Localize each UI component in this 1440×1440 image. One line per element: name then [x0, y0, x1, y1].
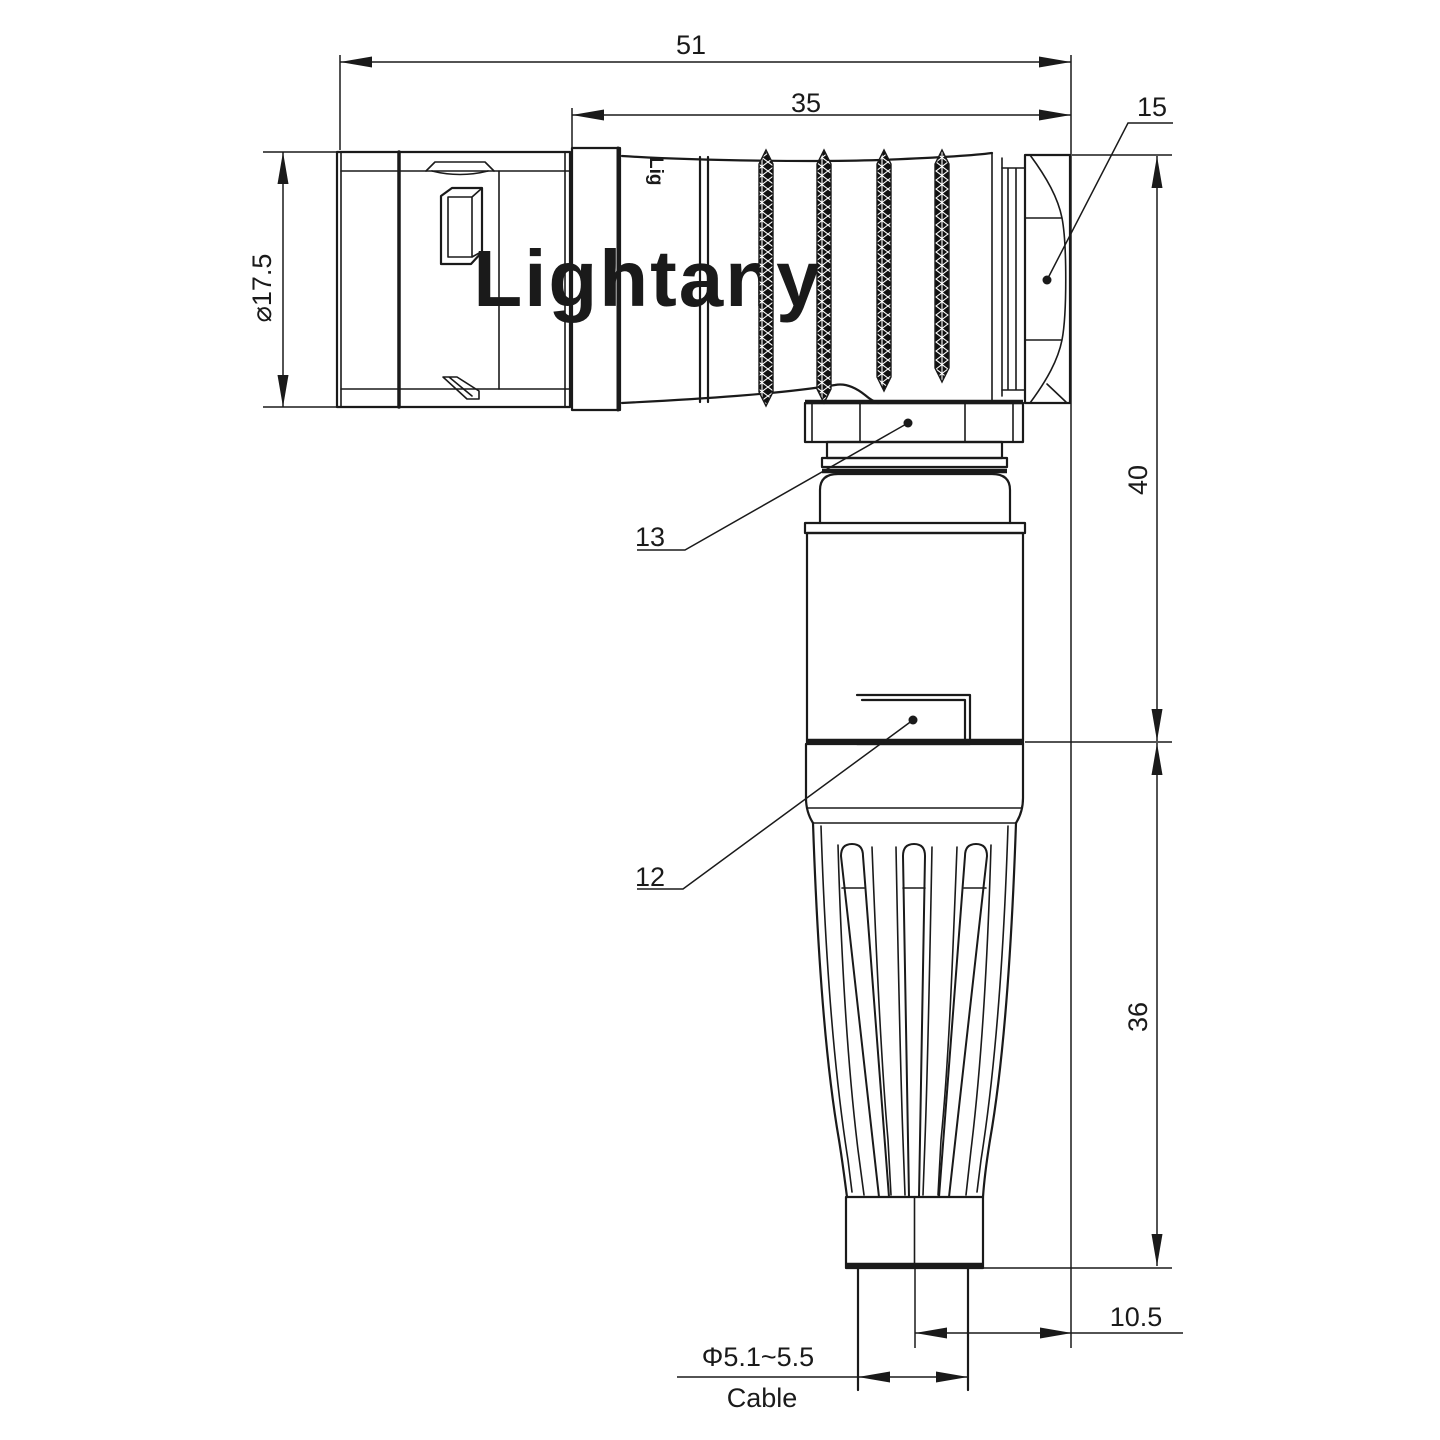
leader-dot: [909, 716, 918, 725]
latch-tab: [426, 162, 494, 175]
dimension-overall-length: 51: [340, 30, 1071, 68]
leader-dot: [904, 419, 913, 428]
callout-text-12: 12: [635, 862, 665, 892]
boot-collar: [806, 744, 1023, 823]
callout-15: 15: [1043, 92, 1174, 285]
elbow-lower-assembly: [805, 384, 1066, 1390]
boot-end-cap: [846, 1197, 983, 1268]
connector-drawing: Lightany: [0, 0, 1440, 1440]
knurl-strip: [877, 150, 891, 391]
technical-drawing-page: Lightany: [0, 0, 1440, 1440]
dim-text-cable-diameter: Φ5.1~5.5: [702, 1342, 814, 1372]
upper-housing: [820, 474, 1010, 523]
cable-label: Cable: [727, 1383, 798, 1413]
dim-text-35: 35: [791, 88, 821, 118]
knurl-strip: [817, 150, 831, 403]
dim-text-diameter: ⌀17.5: [247, 254, 277, 323]
strain-relief-boot: [813, 823, 1016, 1197]
boot-slot: [939, 844, 987, 1197]
dimension-elbow-height: 40: [1123, 156, 1163, 741]
dimension-cable-offset: 10.5: [915, 1302, 1183, 1339]
dimension-boot-length: 36: [1123, 743, 1163, 1266]
leader-dot: [1043, 276, 1052, 285]
boot-slot: [841, 844, 889, 1197]
dim-text-51: 51: [676, 30, 706, 60]
dimension-cable-diameter: Φ5.1~5.5 Cable: [677, 1342, 968, 1413]
knurl-strip: [935, 150, 949, 382]
main-housing: [807, 533, 1023, 744]
cable-lines: [858, 1268, 968, 1390]
groove-ring: [822, 458, 1007, 467]
dimension-rear-length: 35: [572, 88, 1071, 121]
dim-text-40: 40: [1123, 465, 1153, 495]
dim-text-36: 36: [1123, 1002, 1153, 1032]
dim-text-10-5: 10.5: [1110, 1302, 1163, 1332]
neck-ring: [827, 442, 1002, 458]
bottom-notch: [443, 377, 479, 399]
callout-text-13: 13: [635, 522, 665, 552]
body-marking-text: Lig: [645, 157, 666, 186]
callout-text-15: 15: [1137, 92, 1167, 122]
housing-lip: [805, 523, 1025, 533]
coupling-nut: [805, 403, 1023, 442]
boot-slot: [903, 844, 925, 1197]
